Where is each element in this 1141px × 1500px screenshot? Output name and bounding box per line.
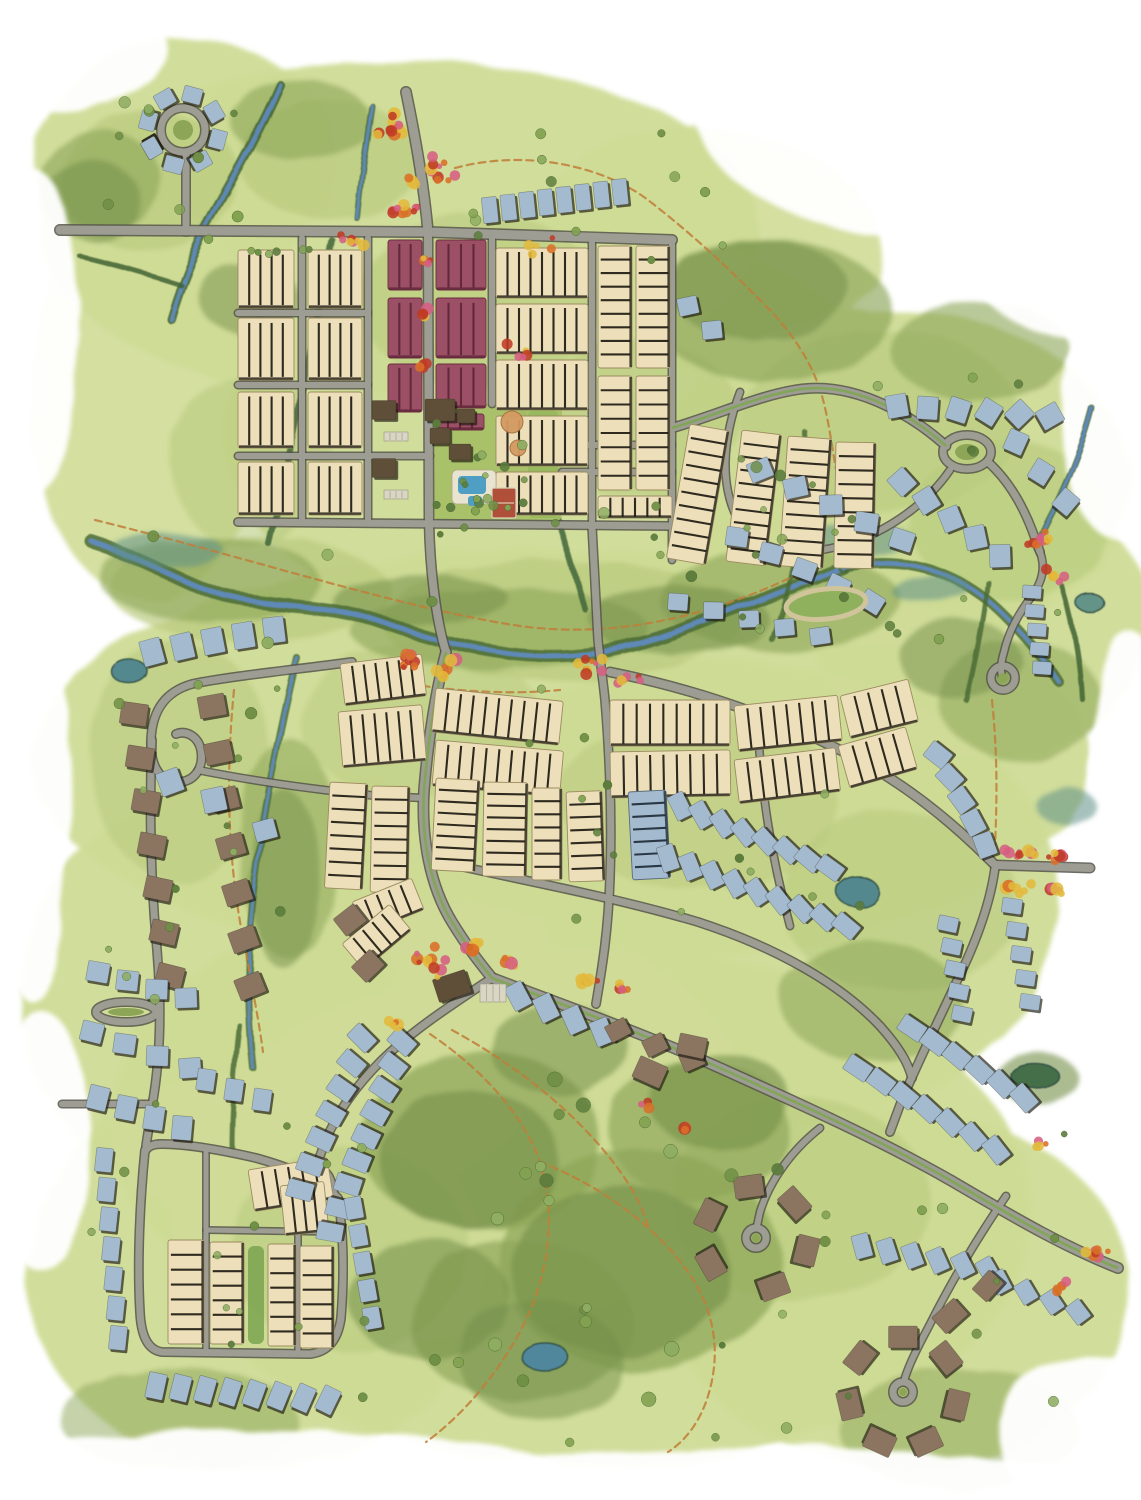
painting-canvas	[0, 0, 1141, 1500]
masterplan-map	[0, 0, 1141, 1500]
